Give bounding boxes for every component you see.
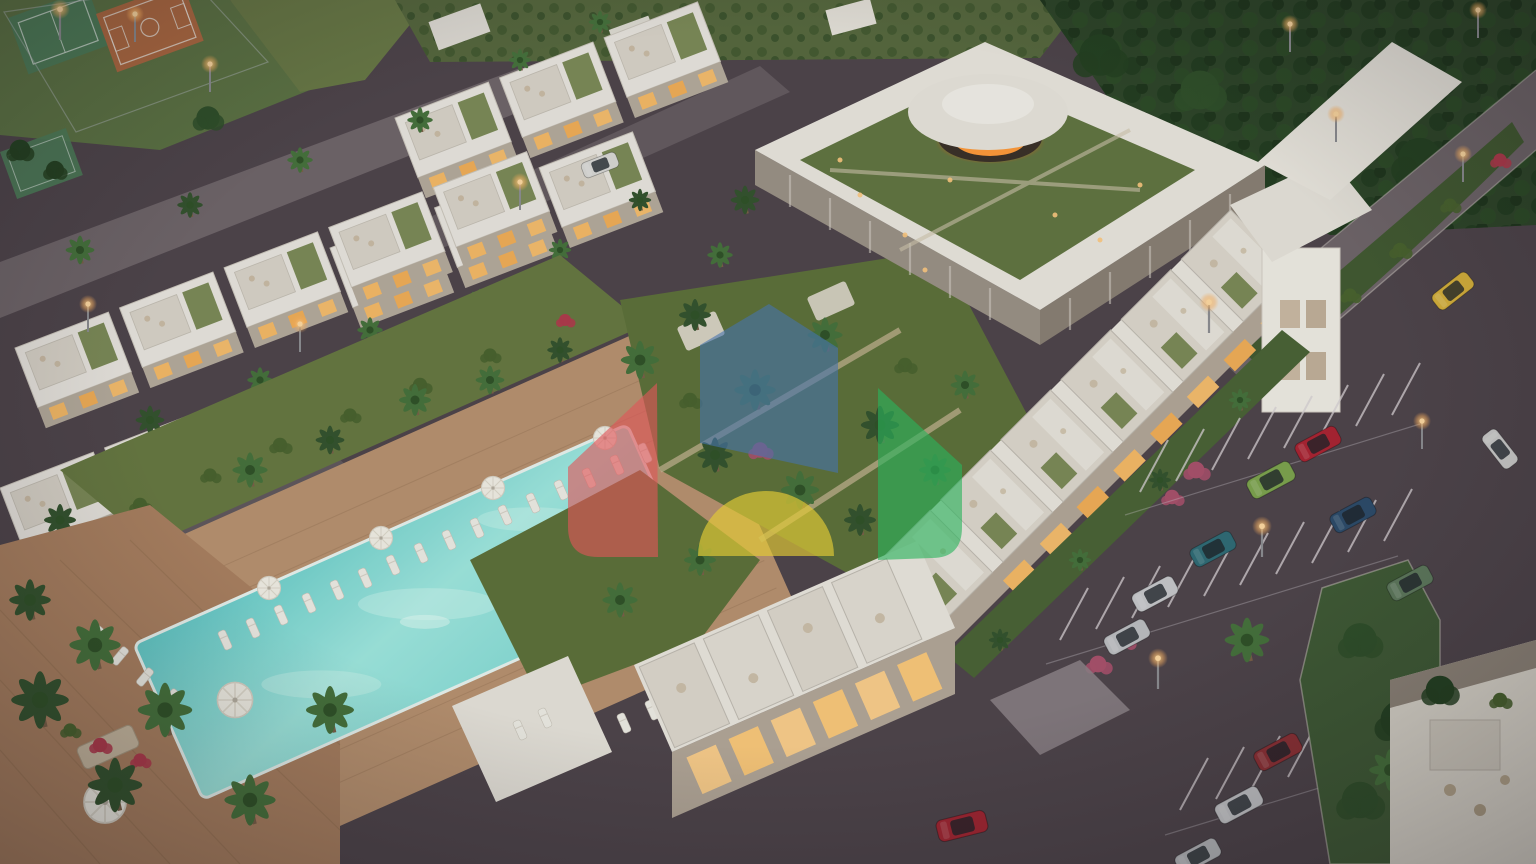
scene-canvas [0,0,1536,864]
aerial-render [0,0,1536,864]
